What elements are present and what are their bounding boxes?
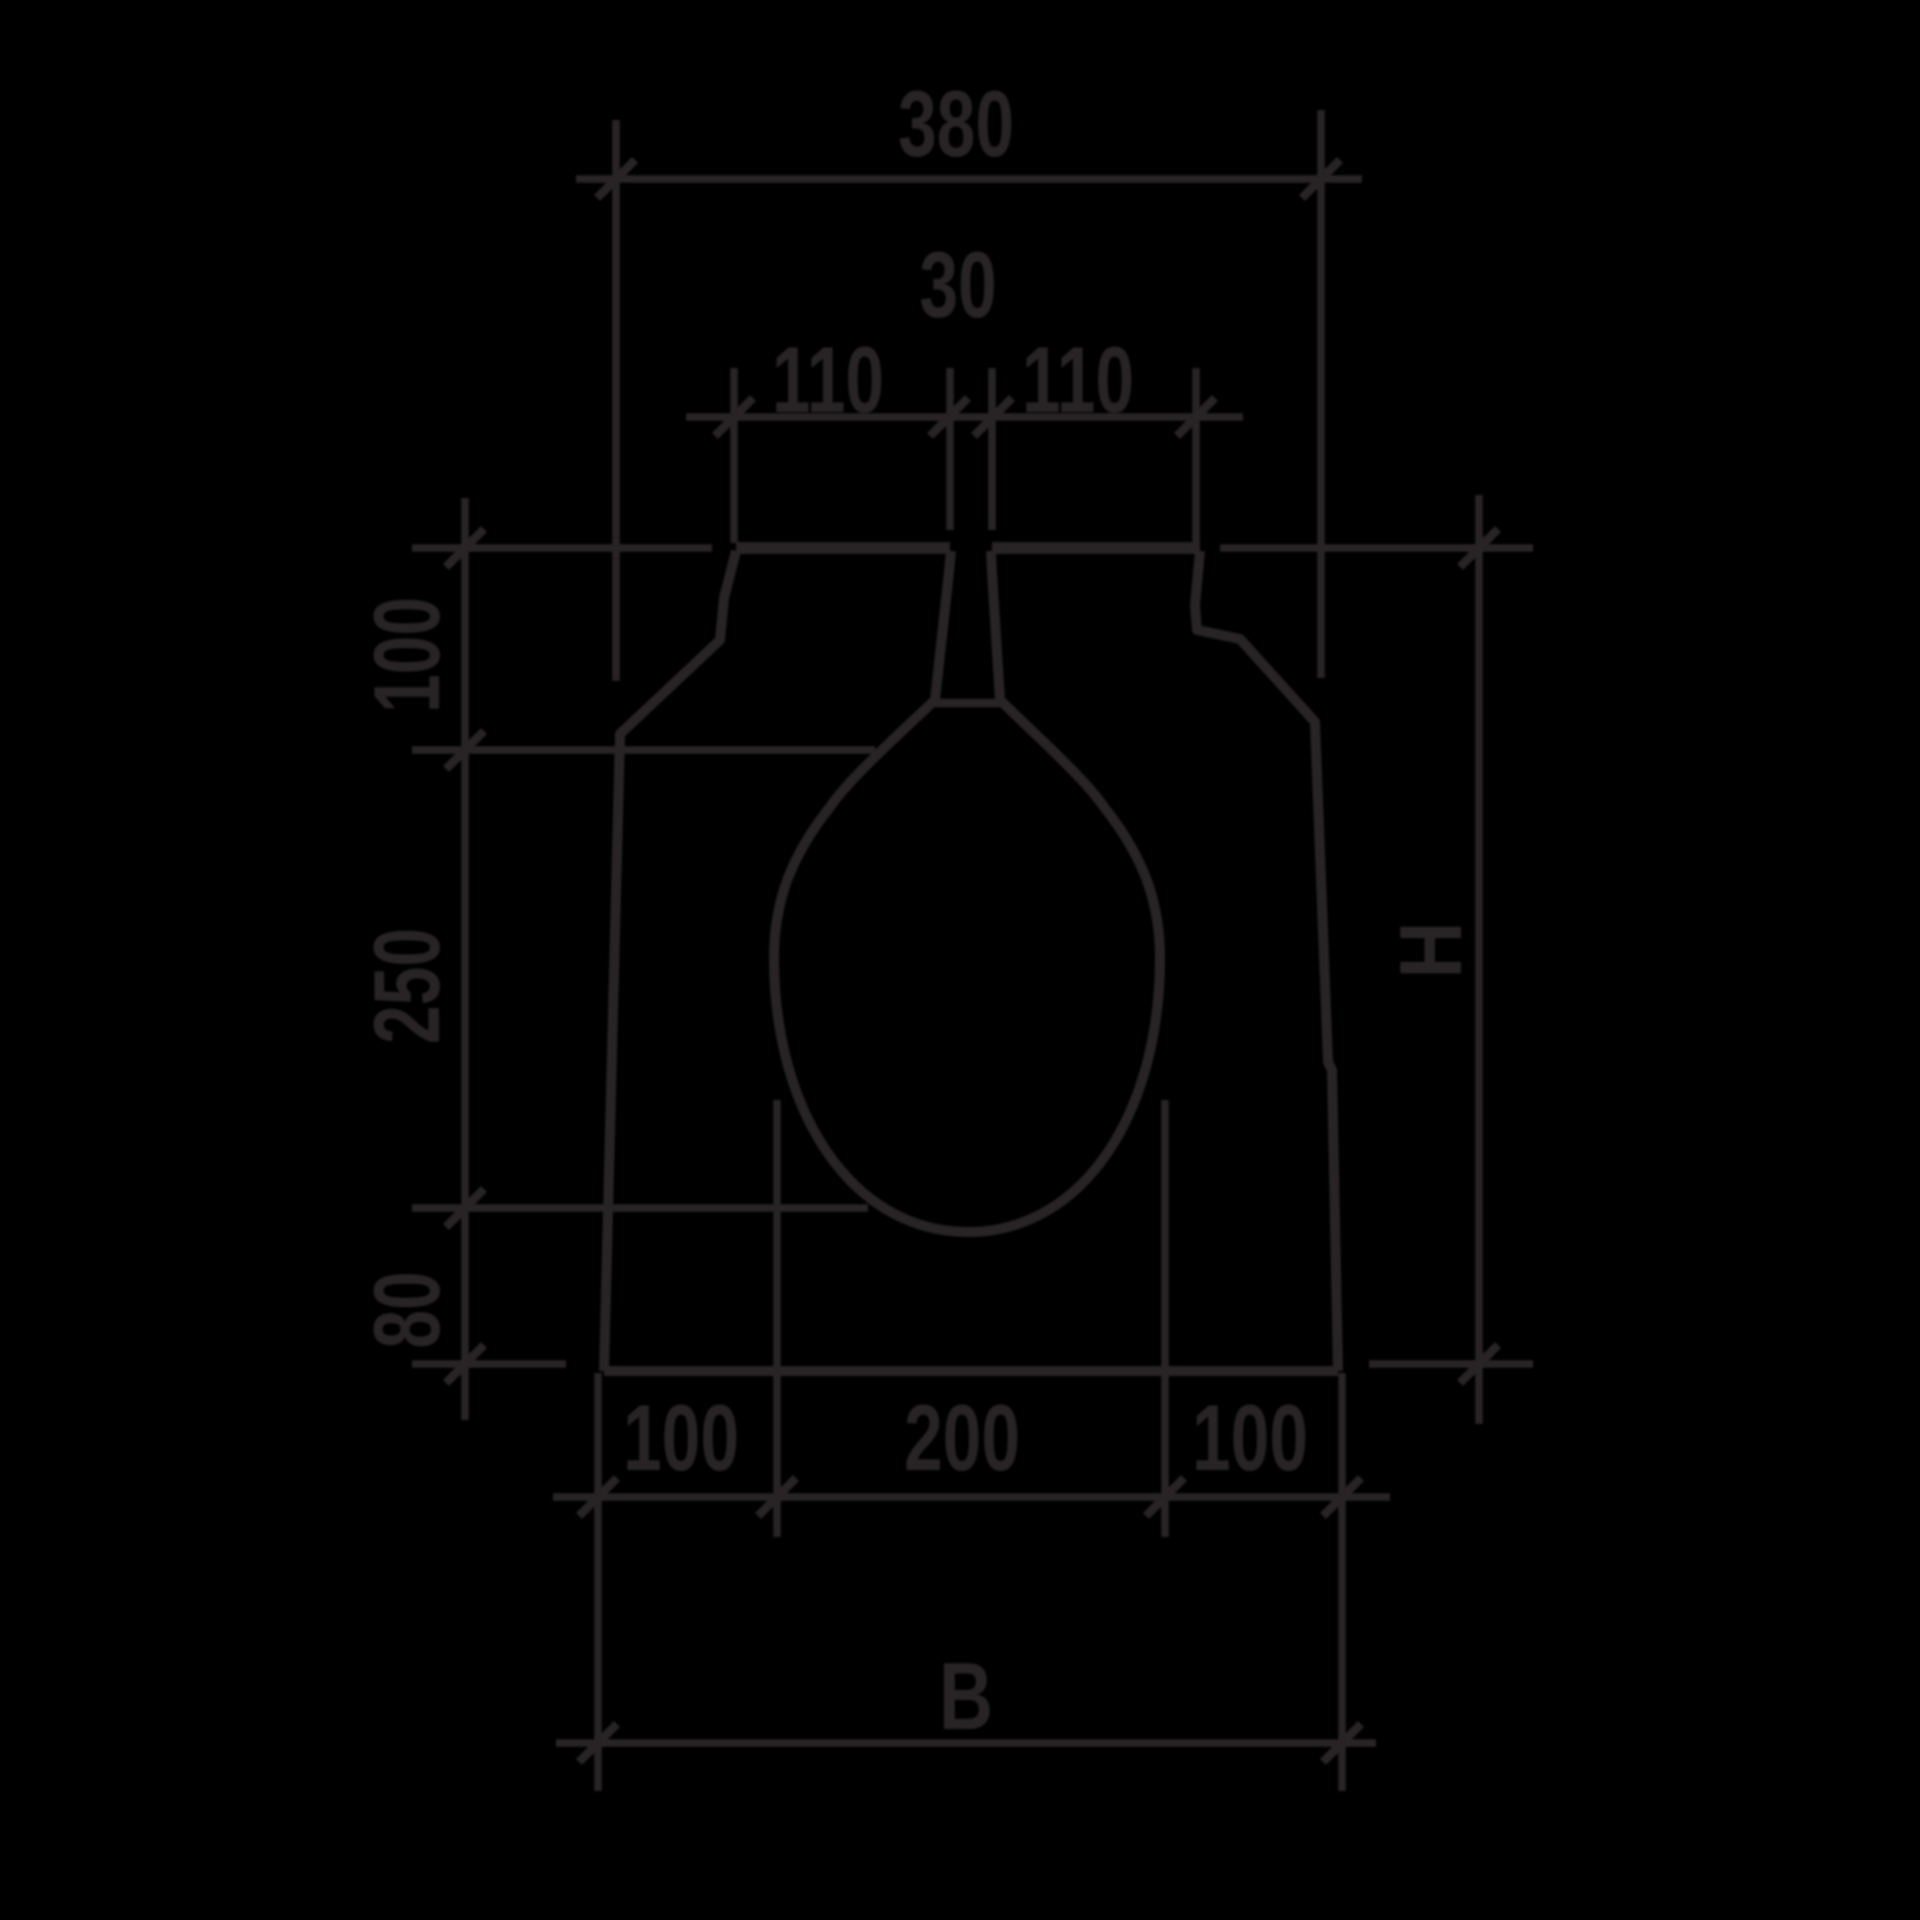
svg-text:H: H [1381,921,1480,978]
svg-text:100: 100 [1192,1385,1308,1491]
svg-text:380: 380 [898,71,1014,177]
svg-text:30: 30 [919,232,996,338]
svg-text:250: 250 [354,928,460,1044]
svg-text:100: 100 [623,1385,739,1491]
svg-text:110: 110 [1022,327,1134,433]
svg-text:B: B [939,1643,993,1750]
svg-text:200: 200 [904,1385,1020,1491]
svg-text:80: 80 [354,1271,460,1348]
svg-text:110: 110 [772,327,884,433]
svg-text:100: 100 [354,597,460,713]
